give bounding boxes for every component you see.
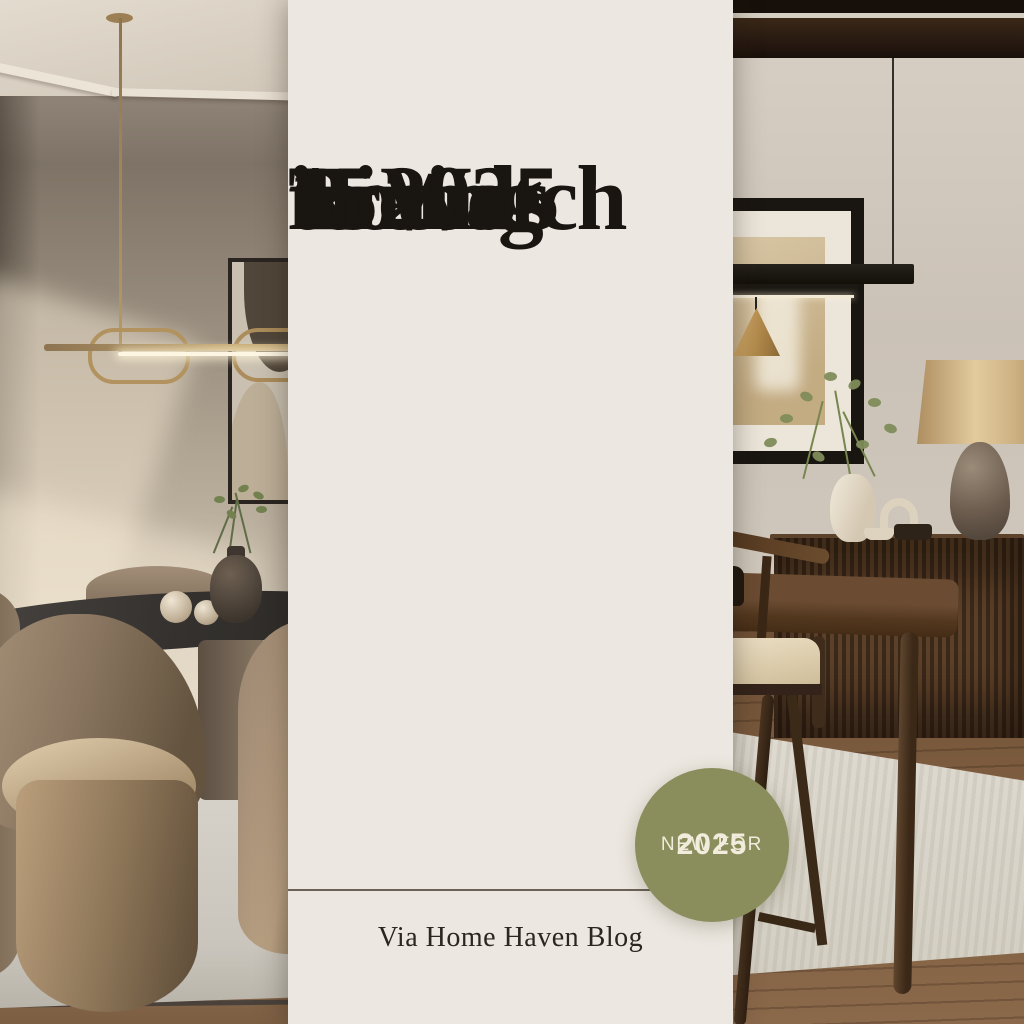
table-lamp-shade — [917, 360, 1024, 444]
new-for-2025-badge: NEW FOR 2025 — [635, 768, 789, 922]
bowl-stack — [864, 528, 894, 540]
chair-seat-cushion — [722, 638, 820, 688]
attribution-text: Via Home Haven Blog — [288, 922, 733, 954]
walnut-dining-table — [719, 572, 959, 637]
branch-leaves — [780, 414, 793, 423]
branch-leaves — [856, 440, 869, 449]
cone-pendant-cord — [755, 297, 757, 310]
chair-seat-frame — [724, 684, 822, 695]
pendant-rod — [119, 18, 122, 352]
branch-leaves — [824, 372, 837, 381]
pendant-brass-loop — [88, 328, 190, 384]
badge-year: 2025 — [677, 828, 748, 862]
chair-cylinder-base — [16, 780, 198, 1012]
decor-sphere — [160, 591, 192, 623]
art-abstract-shape — [232, 382, 288, 500]
pin-graphic: 15 Dining Room Trends to Watch in 2025 V… — [0, 0, 1024, 1024]
title-line: in 2025 — [288, 154, 558, 242]
plant-leaf — [256, 506, 267, 513]
ceramic-vase — [210, 555, 262, 623]
plant-leaf — [214, 496, 225, 503]
pendant-cable — [892, 58, 894, 266]
lidded-pot — [894, 524, 932, 540]
branch-leaves — [868, 398, 881, 407]
